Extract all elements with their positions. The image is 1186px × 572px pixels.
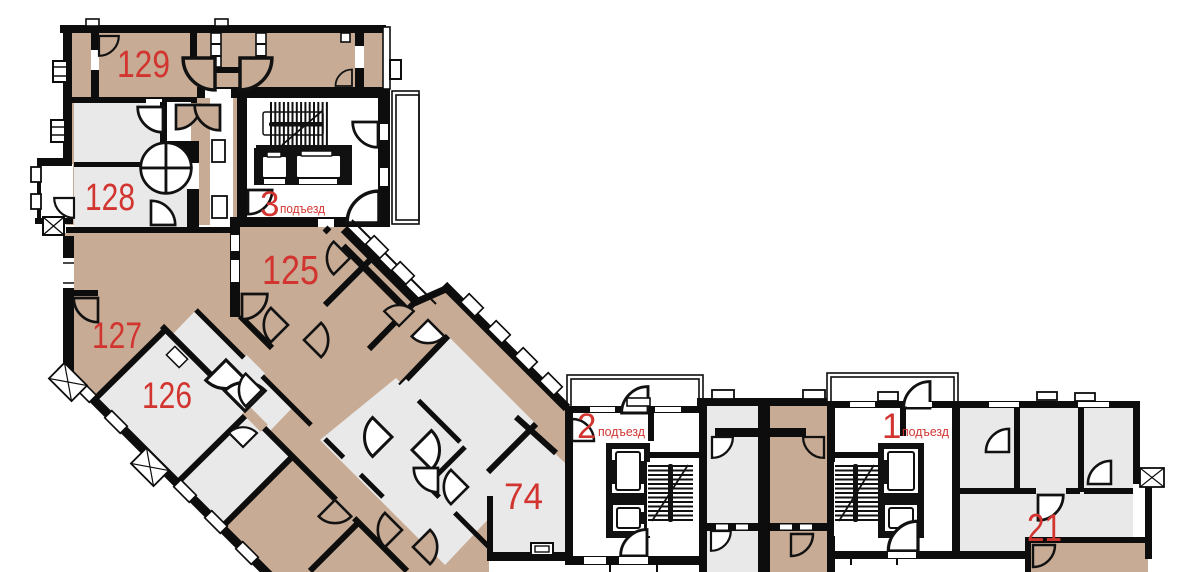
svg-text:3: 3 [260,185,279,224]
svg-text:подъезд: подъезд [280,201,325,216]
svg-text:1: 1 [882,407,901,446]
svg-text:125: 125 [262,247,319,293]
svg-text:2: 2 [577,407,596,446]
svg-text:подъезд: подъезд [598,424,645,439]
svg-text:126: 126 [142,375,192,416]
svg-text:129: 129 [117,44,170,86]
svg-text:подъезд: подъезд [902,424,949,439]
svg-text:128: 128 [85,177,135,219]
svg-text:21: 21 [1027,507,1062,550]
svg-text:74: 74 [504,476,543,517]
svg-text:127: 127 [92,315,142,356]
